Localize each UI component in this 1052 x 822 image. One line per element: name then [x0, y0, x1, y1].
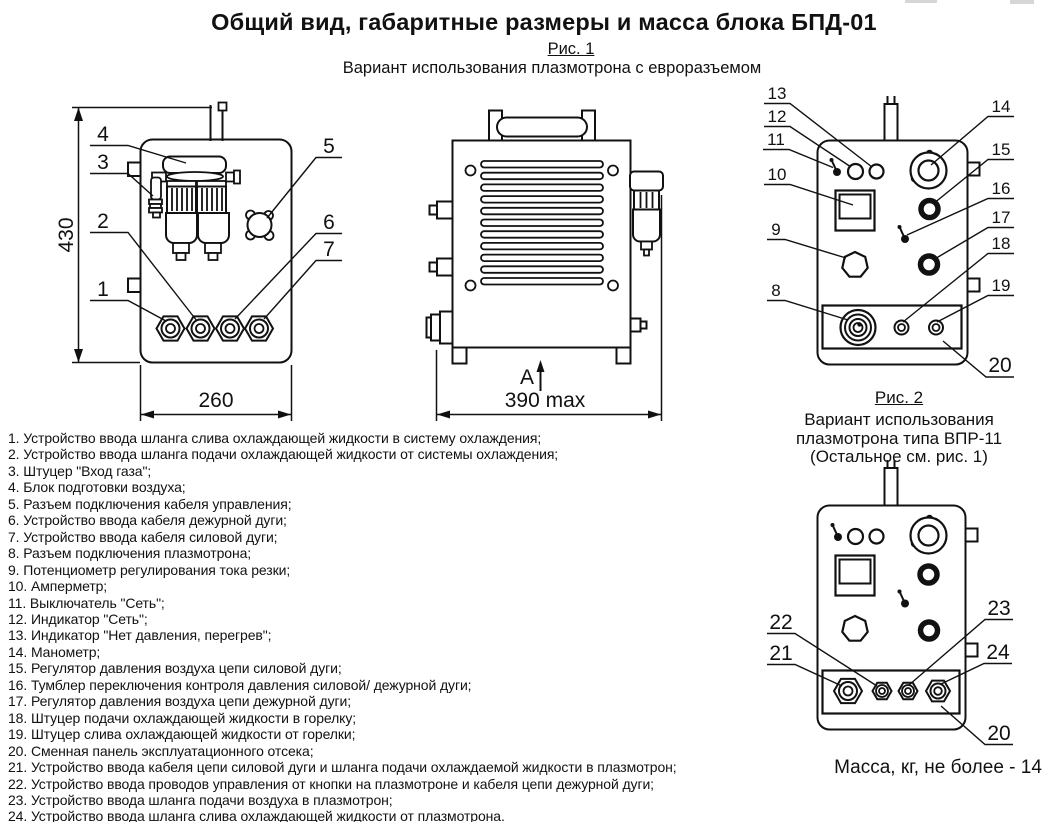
legend-item: 22. Устройство ввода проводов управления… — [8, 776, 677, 792]
fig2-line3: (Остальное см. рис. 1) — [788, 448, 1010, 467]
legend-item: 15. Регулятор давления воздуха цепи сило… — [8, 660, 677, 676]
no-pressure-indicator — [870, 530, 884, 544]
drawing-sheet: Общий вид, габаритные размеры и масса бл… — [0, 0, 1052, 822]
callout-20: 20 — [988, 354, 1011, 377]
legend-item: 6. Устройство ввода кабеля дежурной дуги… — [8, 512, 677, 528]
callout-1: 1 — [97, 278, 109, 301]
legend-item: 10. Амперметр; — [8, 578, 677, 594]
legend-item: 11. Выключатель "Сеть"; — [8, 595, 677, 611]
fig1-front-panel-view: 13 12 11 10 9 8 14 15 16 17 18 — [763, 84, 1014, 377]
top-pipe — [885, 97, 898, 140]
callout-13: 13 — [768, 84, 787, 103]
coolant-supply-fitting — [895, 321, 909, 335]
callout-16: 16 — [992, 179, 1011, 198]
mains-indicator — [848, 529, 863, 544]
callout-7: 7 — [323, 238, 335, 261]
legend-item: 16. Тумблер переключения контроля давлен… — [8, 677, 677, 693]
view-label: А — [520, 366, 534, 389]
fig2-front-panel-view: 22 21 23 24 20 — [767, 461, 1013, 745]
ammeter — [836, 191, 875, 231]
coolant-return-fitting — [929, 321, 943, 335]
callout-24: 24 — [986, 641, 1010, 664]
dim-depth-label: 390 max — [505, 389, 586, 412]
hex-gland-23 — [899, 683, 918, 699]
fig1-rear-view: 430 260 4 3 2 1 5 — [55, 103, 342, 422]
legend-item: 13. Индикатор "Нет давления, перегрев"; — [8, 627, 677, 643]
fig2-caption: Рис. 2 — [788, 388, 1010, 408]
view-direction-A: А — [520, 360, 545, 390]
legend-item: 23. Устройство ввода шланга подачи возду… — [8, 792, 677, 808]
carrying-handle — [489, 111, 595, 141]
panel-screw — [608, 166, 618, 176]
callout-11: 11 — [767, 130, 785, 149]
legend-item: 21. Устройство ввода кабеля цепи силовой… — [8, 759, 677, 775]
dim-height-label: 430 — [55, 217, 78, 252]
current-potentiometer — [842, 252, 867, 277]
legend-item: 2. Устройство ввода шланга подачи охлажд… — [8, 446, 677, 462]
callout-14: 14 — [992, 97, 1011, 116]
callout-6: 6 — [323, 211, 335, 234]
callout-5: 5 — [323, 135, 335, 158]
mass-note: Масса, кг, не более - 14 — [834, 757, 1042, 779]
panel-screw — [466, 281, 476, 291]
legend-item: 17. Регулятор давления воздуха цепи дежу… — [8, 693, 677, 709]
legend-item: 3. Штуцер "Вход газа"; — [8, 463, 677, 479]
legend-item: 4. Блок подготовки воздуха; — [8, 479, 677, 495]
panel-screw — [466, 166, 476, 176]
legend-item: 20. Сменная панель эксплуатационного отс… — [8, 743, 677, 759]
panel-screw — [608, 281, 618, 291]
current-potentiometer — [842, 616, 867, 641]
callout-21: 21 — [769, 642, 792, 665]
air-regulator-power-arc — [921, 201, 938, 218]
legend-item: 9. Потенциометр регулирования тока резки… — [8, 562, 677, 578]
side-air-filter — [630, 172, 663, 256]
legend-item: 5. Разъем подключения кабеля управления; — [8, 496, 677, 512]
callout-17: 17 — [992, 208, 1011, 227]
air-regulator-power-arc — [920, 566, 937, 583]
callout-23: 23 — [987, 597, 1010, 620]
legend-item: 24. Устройство ввода шланга слива охлажд… — [8, 808, 677, 822]
callout-8: 8 — [771, 281, 780, 300]
legend-list: 1. Устройство ввода шланга слива охлажда… — [8, 430, 677, 822]
callout-20: 20 — [987, 722, 1010, 745]
legend-item: 14. Манометр; — [8, 644, 677, 660]
manometer — [911, 516, 947, 554]
callout-19: 19 — [992, 276, 1011, 295]
callout-15: 15 — [992, 140, 1011, 159]
legend-item: 12. Индикатор "Сеть"; — [8, 611, 677, 627]
ammeter — [836, 556, 875, 596]
dimension-width-260: 260 — [141, 365, 292, 421]
legend-item: 19. Штуцер слива охлаждающей жидкости от… — [8, 726, 677, 742]
top-pipe — [885, 461, 898, 505]
legend-item: 1. Устройство ввода шланга слива охлажда… — [8, 430, 677, 446]
callout-3: 3 — [97, 151, 109, 174]
legend-item: 18. Штуцер подачи охлаждающей жидкости в… — [8, 710, 677, 726]
air-regulator-pilot-arc — [921, 622, 938, 639]
callout-12: 12 — [768, 107, 787, 126]
fig2-line1: Вариант использования — [788, 411, 1010, 430]
hex-gland-24 — [926, 681, 950, 702]
callout-22: 22 — [769, 611, 792, 634]
dim-width-label: 260 — [198, 389, 233, 412]
callout-2: 2 — [97, 210, 109, 233]
callout-4: 4 — [97, 123, 109, 146]
callout-10: 10 — [768, 165, 787, 184]
fig1-side-view: А 390 max — [427, 111, 664, 422]
torch-connector — [841, 310, 876, 345]
top-pipe — [211, 103, 227, 141]
callout-18: 18 — [992, 234, 1011, 253]
legend-item: 7. Устройство ввода кабеля силовой дуги; — [8, 529, 677, 545]
fig2-caption-block: Рис. 2 Вариант использования плазмотрона… — [788, 388, 1010, 467]
ventilation-grille — [481, 161, 603, 285]
legend-item: 8. Разъем подключения плазмотрона; — [8, 545, 677, 561]
hex-gland-21 — [834, 679, 862, 703]
fig2-line2: плазмотрона типа ВПР-11 — [788, 430, 1010, 449]
callout-9: 9 — [771, 220, 780, 239]
